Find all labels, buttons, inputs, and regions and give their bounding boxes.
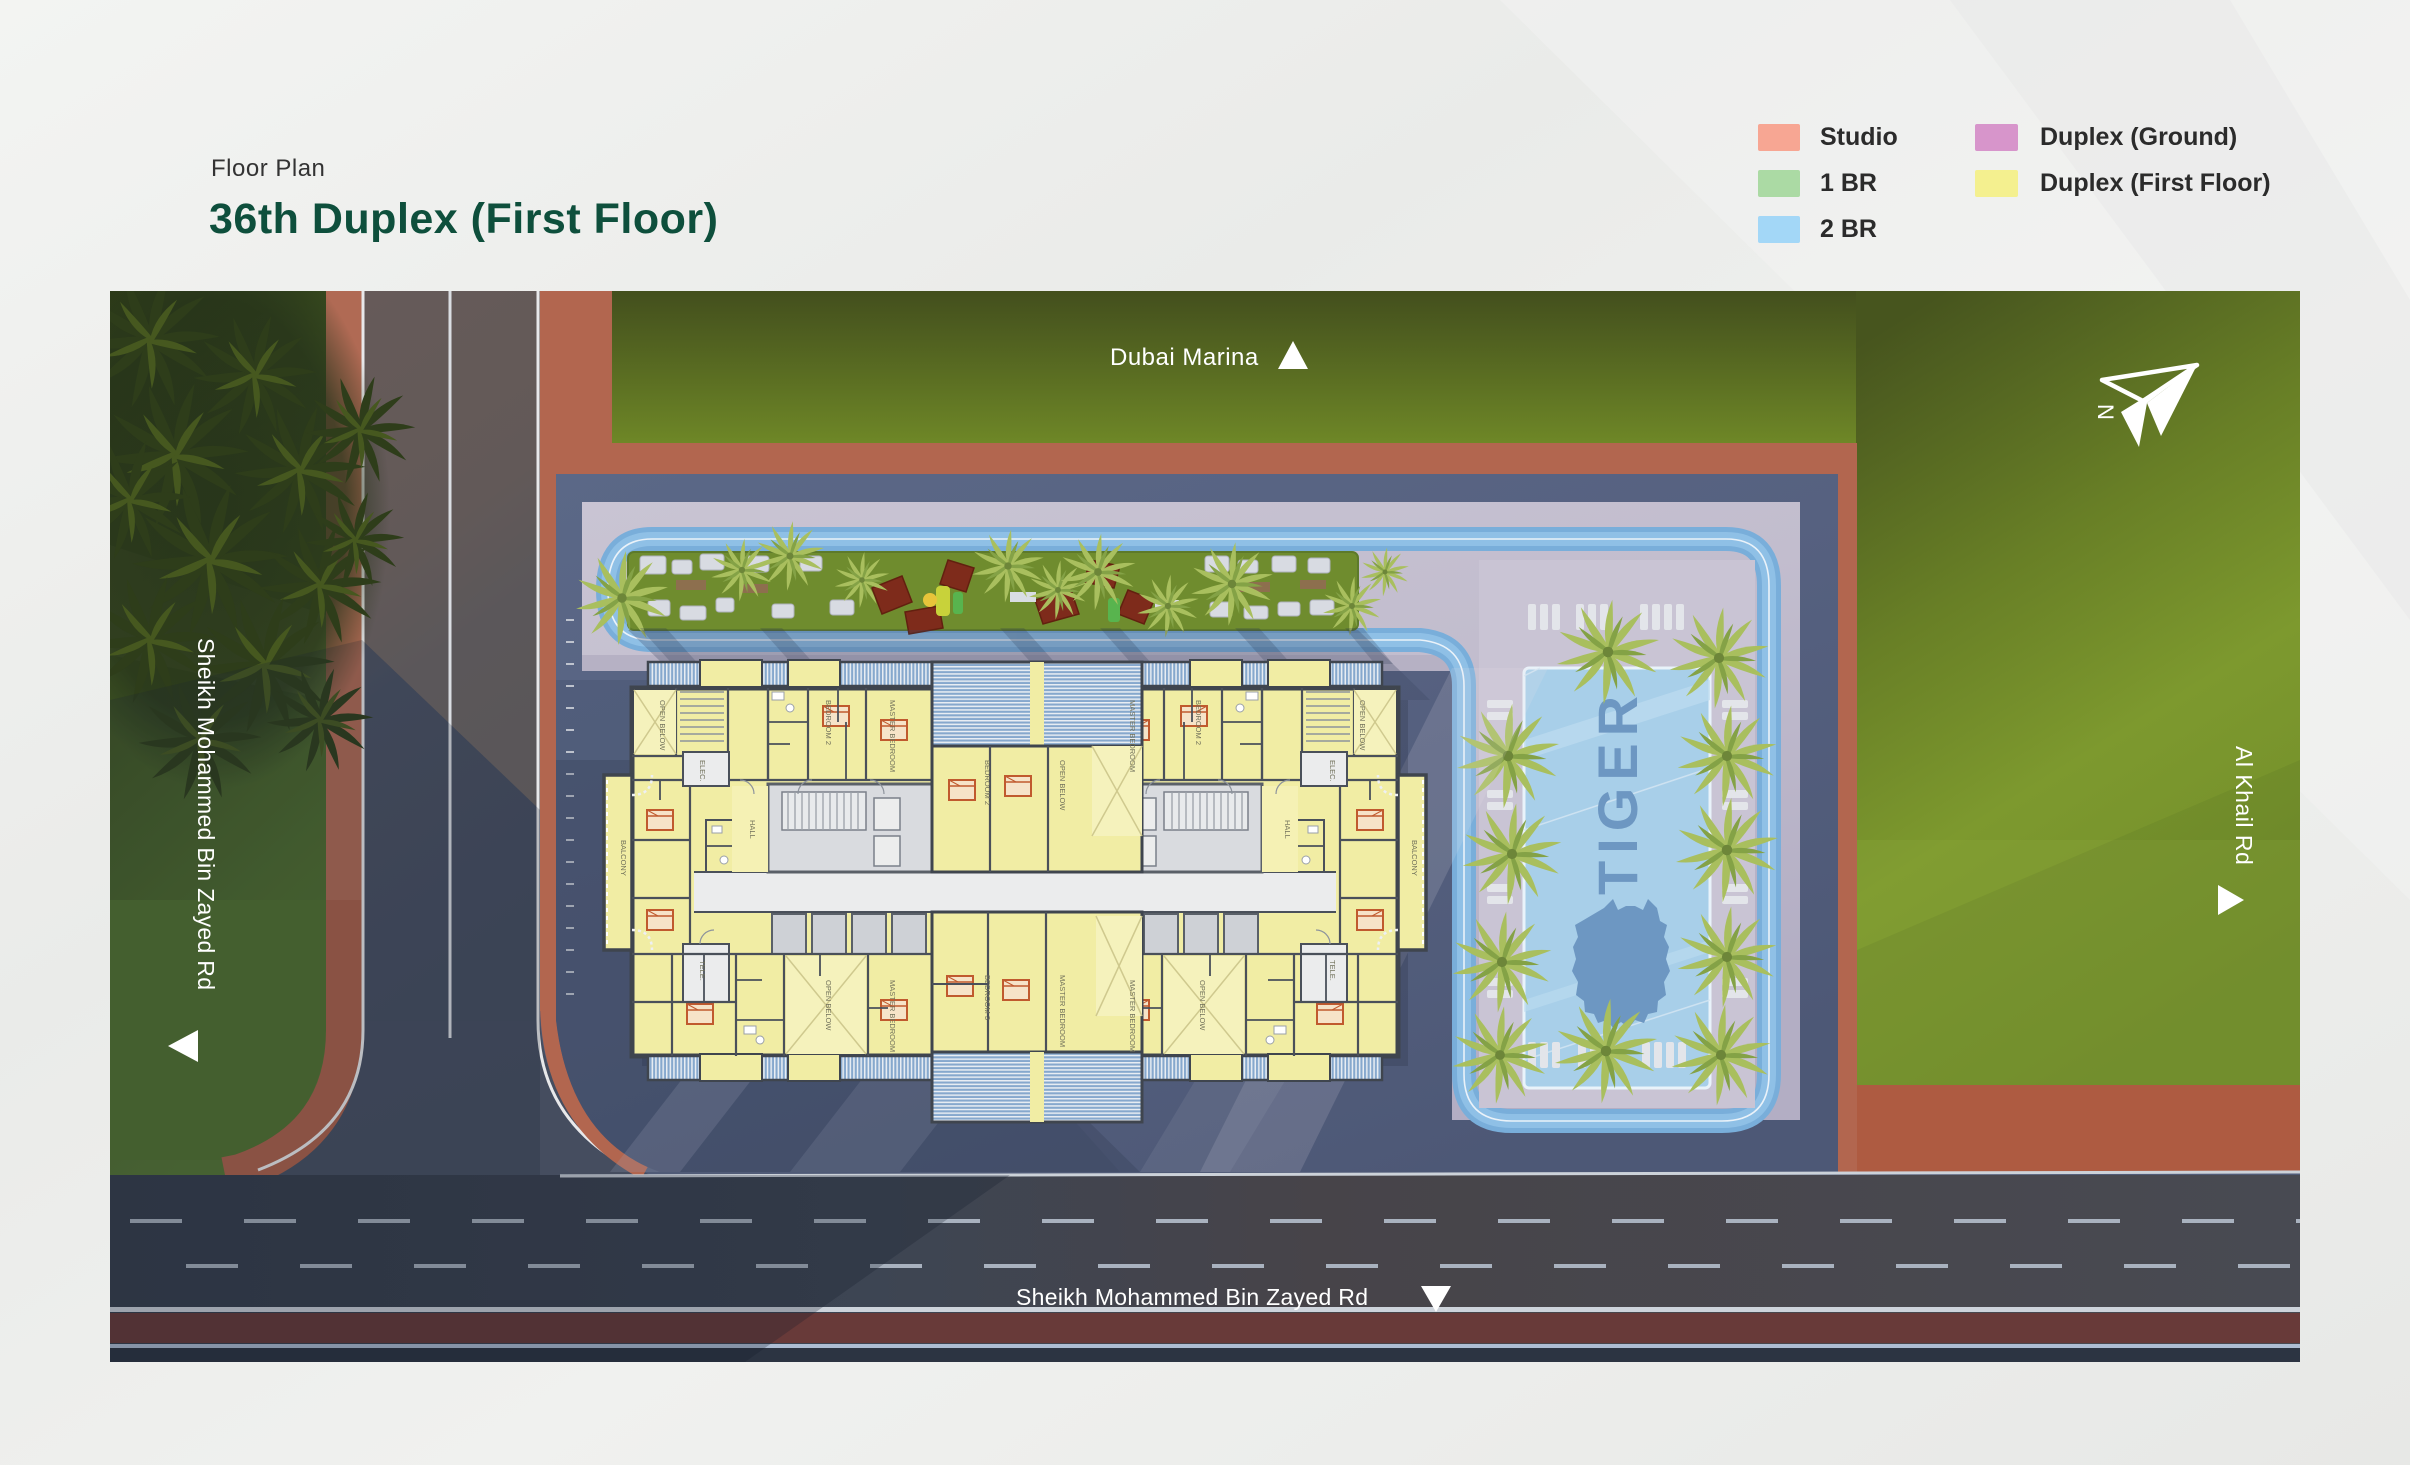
svg-text:Sheikh Mohammed Bin Zayed Rd: Sheikh Mohammed Bin Zayed Rd bbox=[1016, 1284, 1368, 1310]
svg-text:BEDROOM 2: BEDROOM 2 bbox=[824, 700, 833, 745]
svg-text:Duplex (First Floor): Duplex (First Floor) bbox=[2040, 169, 2271, 197]
svg-text:Duplex (Ground): Duplex (Ground) bbox=[2040, 123, 2237, 151]
svg-text:OPEN BELOW: OPEN BELOW bbox=[824, 980, 833, 1031]
svg-text:Dubai Marina: Dubai Marina bbox=[1110, 344, 1259, 371]
svg-text:1 BR: 1 BR bbox=[1820, 169, 1877, 197]
svg-text:MASTER BEDROOM: MASTER BEDROOM bbox=[1058, 975, 1067, 1047]
svg-text:ELEC.: ELEC. bbox=[1328, 760, 1337, 782]
svg-text:Floor Plan: Floor Plan bbox=[211, 155, 325, 182]
svg-text:ELEC.: ELEC. bbox=[698, 760, 707, 782]
svg-text:Sheikh Mohammed Bin Zayed Rd: Sheikh Mohammed Bin Zayed Rd bbox=[193, 638, 219, 990]
svg-text:OPEN BELOW: OPEN BELOW bbox=[1198, 980, 1207, 1031]
svg-text:BEDROOM 2: BEDROOM 2 bbox=[1194, 700, 1203, 745]
svg-text:MASTER BEDROOM: MASTER BEDROOM bbox=[888, 700, 897, 772]
svg-text:BEDROOM 2: BEDROOM 2 bbox=[983, 760, 992, 805]
svg-text:BEDROOM 3: BEDROOM 3 bbox=[983, 975, 992, 1020]
svg-text:N: N bbox=[2093, 404, 2118, 420]
svg-text:HALL: HALL bbox=[748, 820, 757, 839]
svg-text:MASTER BEDROOM: MASTER BEDROOM bbox=[1128, 980, 1137, 1052]
svg-text:BALCONY: BALCONY bbox=[619, 840, 628, 876]
svg-text:OPEN BELOW: OPEN BELOW bbox=[1058, 760, 1067, 811]
svg-text:36th Duplex (First Floor): 36th Duplex (First Floor) bbox=[209, 195, 718, 243]
svg-text:OPEN BELOW: OPEN BELOW bbox=[658, 700, 667, 751]
svg-text:MASTER BEDROOM: MASTER BEDROOM bbox=[1128, 700, 1137, 772]
svg-text:MASTER BEDROOM: MASTER BEDROOM bbox=[888, 980, 897, 1052]
svg-text:HALL: HALL bbox=[1283, 820, 1292, 839]
svg-text:Al Khail Rd: Al Khail Rd bbox=[2231, 746, 2257, 865]
svg-text:OPEN BELOW: OPEN BELOW bbox=[1358, 700, 1367, 751]
svg-text:TELE.: TELE. bbox=[1328, 960, 1337, 981]
svg-text:Studio: Studio bbox=[1820, 123, 1898, 151]
svg-text:TELE.: TELE. bbox=[698, 960, 707, 981]
svg-text:TIGER: TIGER bbox=[1586, 689, 1649, 895]
svg-text:BALCONY: BALCONY bbox=[1410, 840, 1419, 876]
svg-text:2 BR: 2 BR bbox=[1820, 215, 1877, 243]
